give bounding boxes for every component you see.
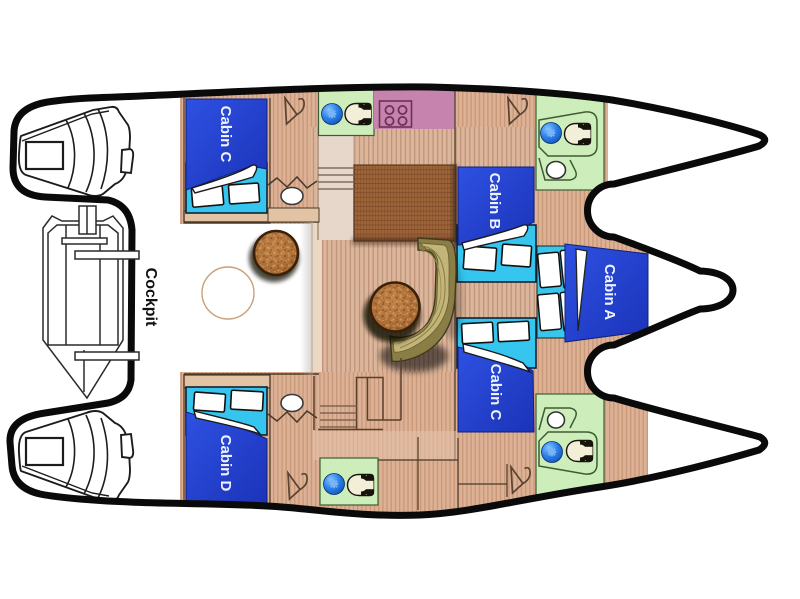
svg-text:Cabin B: Cabin B [486,173,503,230]
svg-text:Cabin C: Cabin C [217,106,234,163]
svg-text:Cockpit: Cockpit [142,268,159,327]
svg-text:Cabin D: Cabin D [217,435,234,492]
svg-text:Cabin C: Cabin C [487,364,504,421]
svg-text:Cabin A: Cabin A [601,264,618,320]
